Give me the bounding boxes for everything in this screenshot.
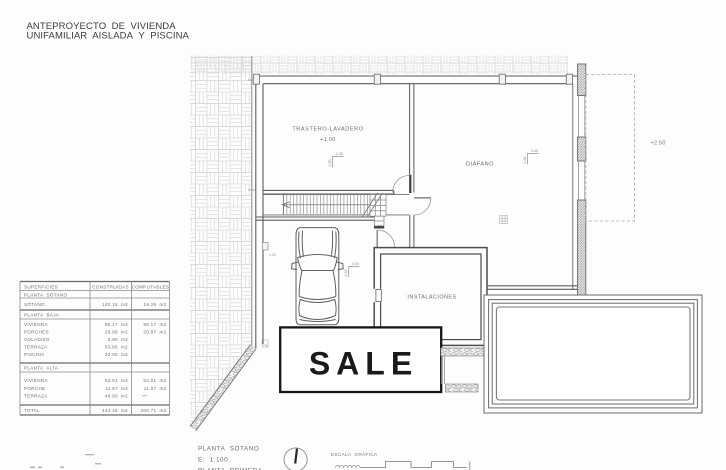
svg-text:ESCALA GRÁFICA: ESCALA GRÁFICA <box>331 451 378 457</box>
svg-text:VIVIENDA: VIVIENDA <box>24 378 48 383</box>
svg-text:32.00 m2: 32.00 m2 <box>105 352 128 357</box>
svg-text:28.99 m2: 28.99 m2 <box>105 329 128 334</box>
svg-text:CONSTRUIDAS: CONSTRUIDAS <box>92 284 129 289</box>
svg-text:95.17 m2: 95.17 m2 <box>143 322 166 327</box>
svg-text:48.90 m2: 48.90 m2 <box>105 393 128 398</box>
svg-text:PORCHE: PORCHE <box>24 386 45 391</box>
svg-text:TERRAZA: TERRAZA <box>24 344 48 349</box>
svg-text:120.15 m2: 120.15 m2 <box>102 302 128 307</box>
svg-text:4.50: 4.50 <box>523 157 527 164</box>
svg-text:+1.00: +1.00 <box>320 137 336 143</box>
svg-text:E: 1:100: E: 1:100 <box>198 457 228 464</box>
svg-text:COMPUTABLES: COMPUTABLES <box>132 284 170 289</box>
svg-text:3.90 m2: 3.90 m2 <box>108 337 128 342</box>
svg-text:PORCHES: PORCHES <box>24 329 49 334</box>
svg-text:3.45: 3.45 <box>531 149 538 153</box>
svg-text:SUPERFICIES: SUPERFICIES <box>24 284 58 289</box>
svg-text:+2.50: +2.50 <box>651 141 666 147</box>
svg-text:4.50: 4.50 <box>328 160 332 167</box>
svg-text:0.35: 0.35 <box>336 152 343 156</box>
svg-text:0.00: 0.00 <box>352 262 359 266</box>
svg-text:PISCINA: PISCINA <box>24 352 45 357</box>
svg-text:DIÁFANO: DIÁFANO <box>466 161 494 168</box>
svg-text:11.67 m2: 11.67 m2 <box>144 386 167 391</box>
svg-text:19.29 m2: 19.29 m2 <box>143 302 166 307</box>
svg-text:11.67 m2: 11.67 m2 <box>105 386 128 391</box>
svg-text:PLANTA SÓTANO: PLANTA SÓTANO <box>24 291 67 297</box>
svg-text:4.50: 4.50 <box>344 270 348 277</box>
svg-text:53.61 m2: 53.61 m2 <box>105 378 128 383</box>
svg-text:UNIFAMILIAR AISLADA Y PISCI: UNIFAMILIAR AISLADA Y PISCINA <box>27 30 190 41</box>
svg-text:TERRAZA: TERRAZA <box>24 393 48 398</box>
svg-text:95.17 m2: 95.17 m2 <box>105 322 128 327</box>
svg-text:SÓTANO: SÓTANO <box>24 301 45 307</box>
svg-text:INSTALACIONES: INSTALACIONES <box>407 294 456 300</box>
svg-text:20.87 m2: 20.87 m2 <box>143 329 166 334</box>
svg-text:PLANTA ALTA: PLANTA ALTA <box>24 366 59 371</box>
svg-text:443.15 m2: 443.15 m2 <box>102 408 128 413</box>
svg-text:53.85 m2: 53.85 m2 <box>105 344 128 349</box>
svg-text:TOTAL: TOTAL <box>24 408 40 413</box>
svg-text:1.05: 1.05 <box>269 253 276 257</box>
svg-text:200.71 m2: 200.71 m2 <box>141 408 167 413</box>
svg-text:PLANTA SÓTANO: PLANTA SÓTANO <box>198 444 259 453</box>
svg-text:PLANTA BAJA: PLANTA BAJA <box>24 313 60 318</box>
svg-text:VOLADIZO: VOLADIZO <box>24 337 50 342</box>
svg-text:TRASTERO-LAVADERO: TRASTERO-LAVADERO <box>292 127 363 133</box>
svg-text:VIVIENDA: VIVIENDA <box>24 322 48 327</box>
svg-text:53.61 m2: 53.61 m2 <box>143 378 166 383</box>
svg-text:SALE: SALE <box>309 346 418 382</box>
